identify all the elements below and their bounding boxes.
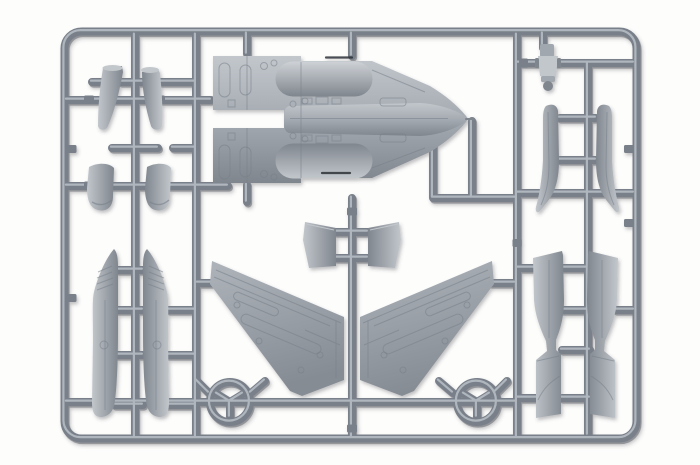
sprue-photograph: Gray injection-molded plastic model kit … (0, 0, 700, 465)
small-fin-part-1 (303, 222, 336, 268)
nose-cone (284, 103, 468, 136)
sprue-illustration: Gray injection-molded plastic model kit … (0, 0, 700, 465)
engine-nacelle-upper (276, 62, 373, 97)
intake-lip-part-1 (87, 164, 114, 211)
intake-lip-part-2 (145, 164, 171, 211)
small-fin-part-2 (368, 222, 401, 268)
